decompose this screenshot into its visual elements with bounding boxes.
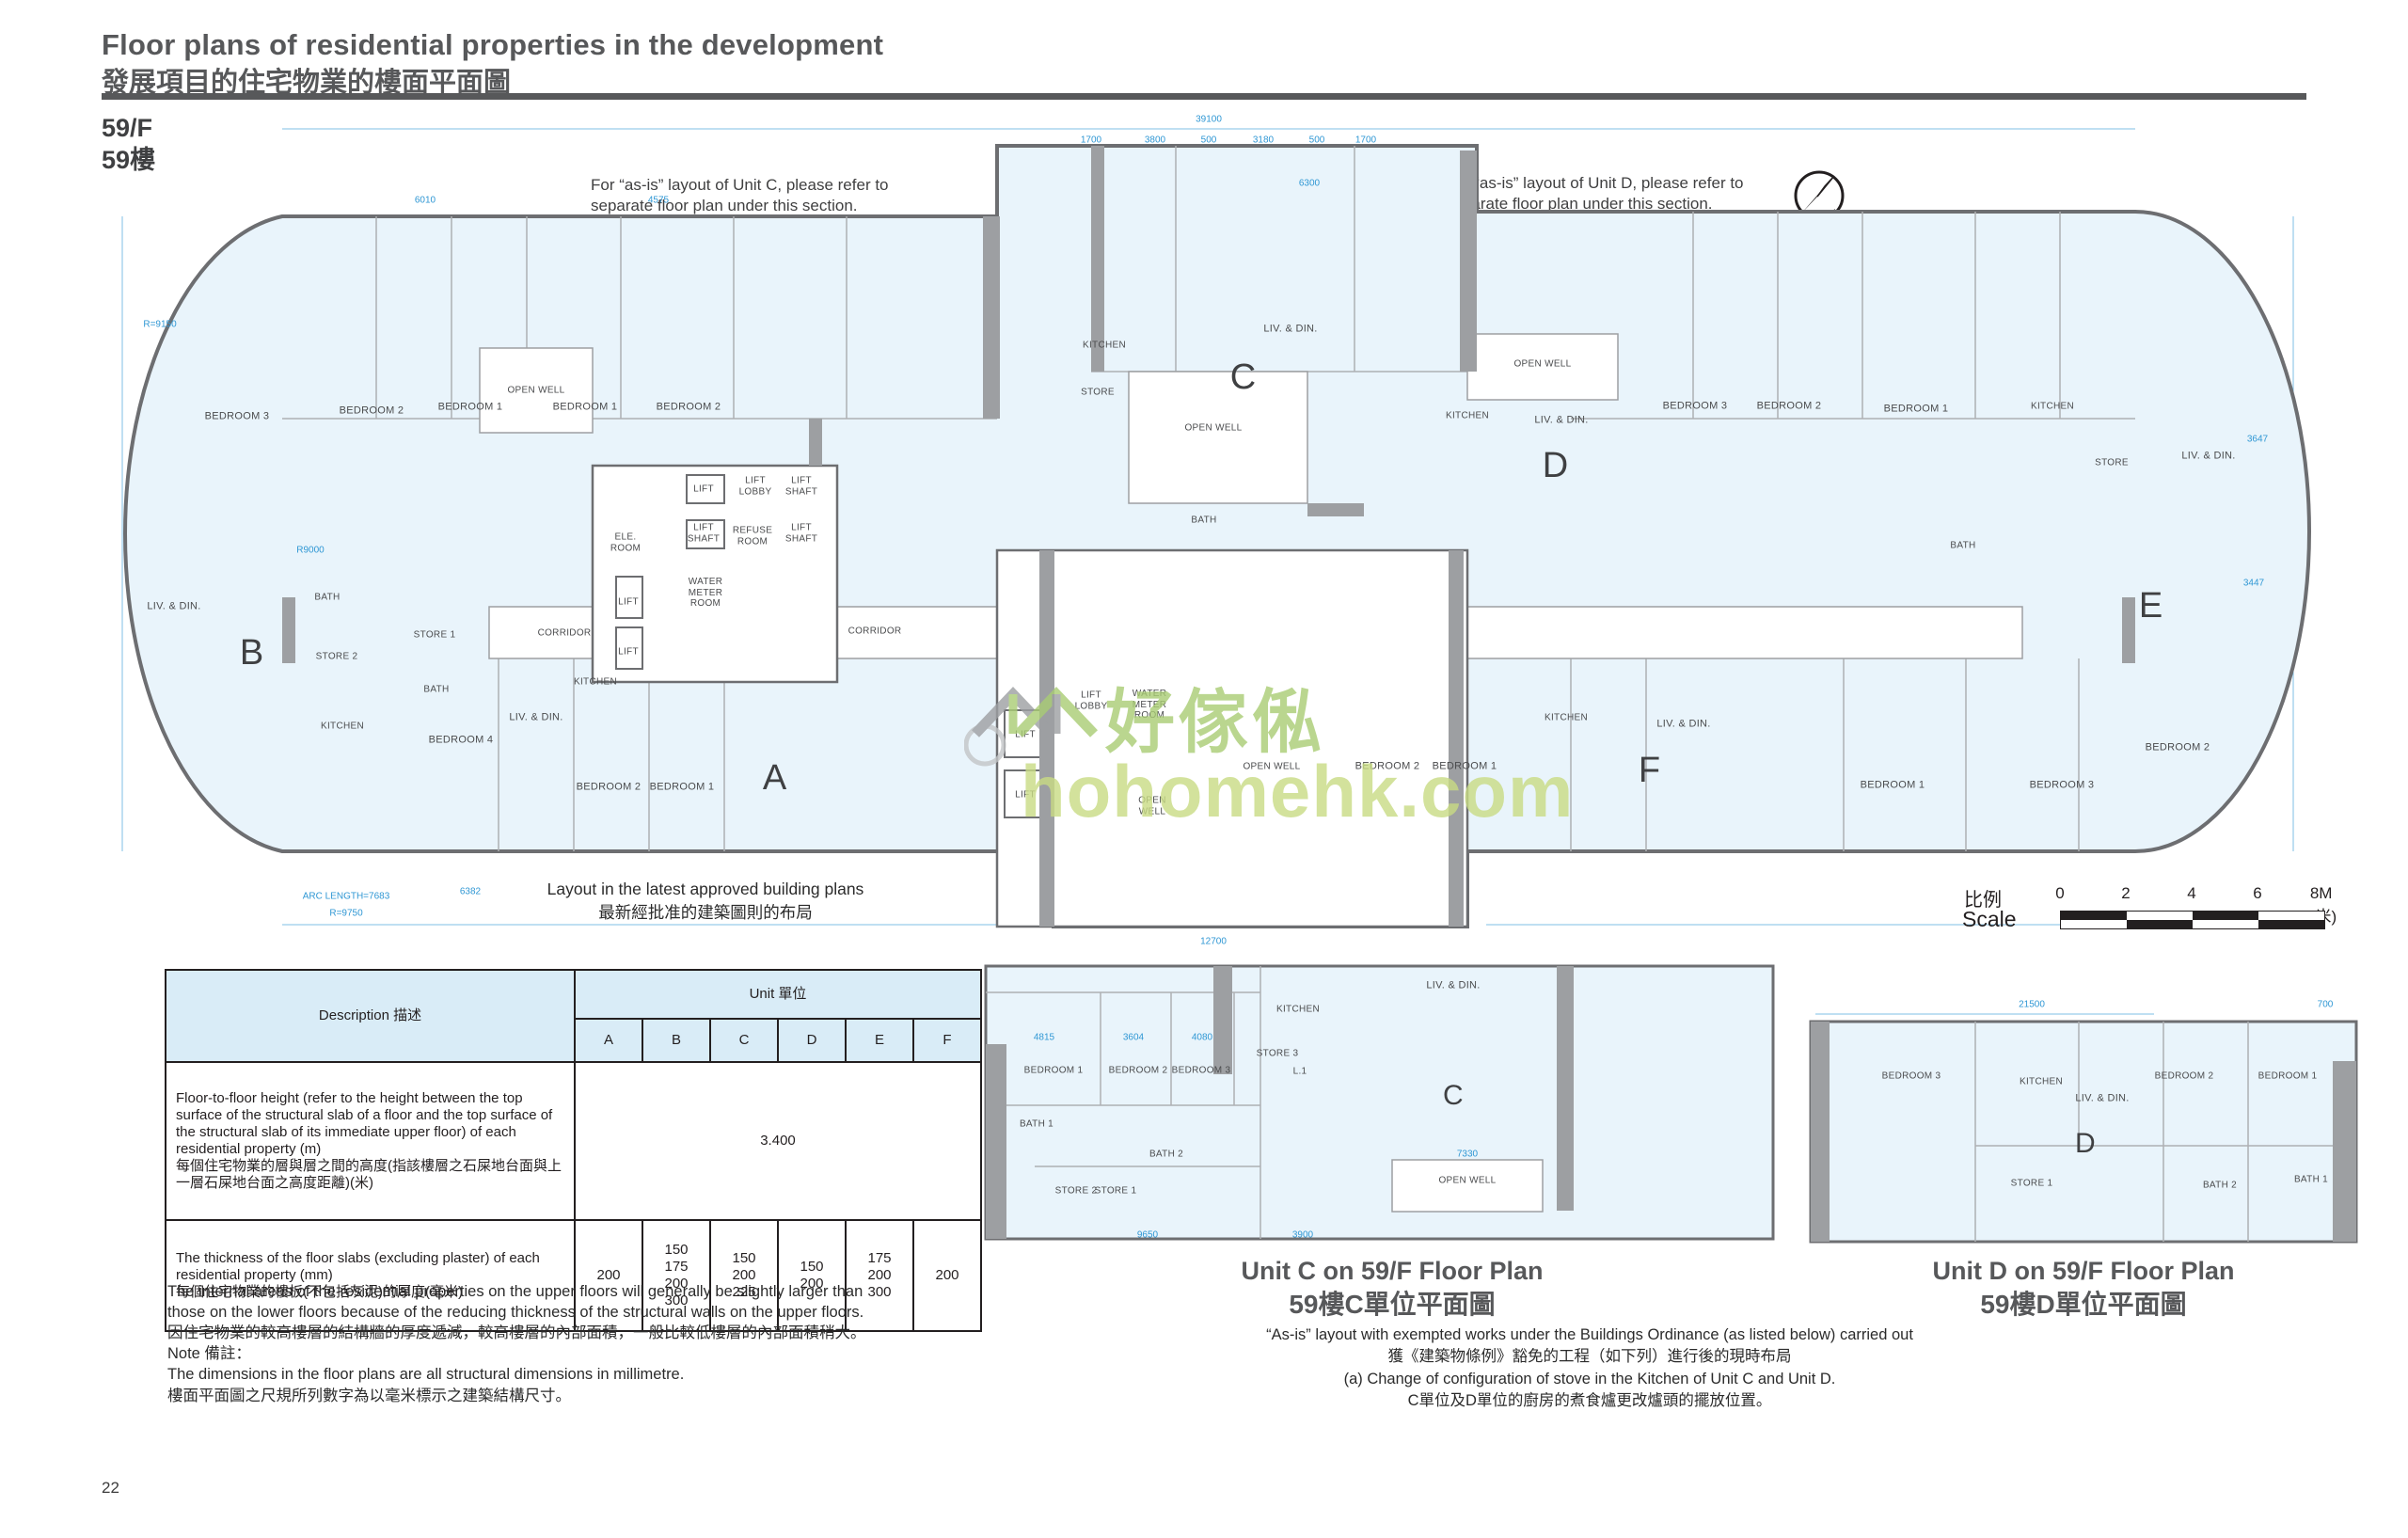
unit-c-caption-zh: 59樓C單位平面圖 (1035, 1288, 1750, 1321)
scale-bar (2060, 911, 2325, 929)
unit-c-plan-drawing (978, 955, 1778, 1251)
page-number: 22 (102, 1479, 119, 1498)
page-title-en: Floor plans of residential properties in… (102, 28, 883, 62)
table-row-floor-height: Floor-to-floor height (refer to the heig… (166, 1062, 981, 1220)
table-col-e: E (846, 1019, 913, 1062)
table-col-c: C (710, 1019, 778, 1062)
page: Floor plans of residential properties in… (0, 0, 2408, 1538)
scale-tick: 2 (2121, 884, 2130, 903)
scale-tick: 6 (2253, 884, 2261, 903)
unit-d-caption: Unit D on 59/F Floor Plan 59樓D單位平面圖 (1806, 1256, 2361, 1321)
scale-tick: 4 (2187, 884, 2195, 903)
main-plan-caption: Layout in the latest approved building p… (395, 878, 1016, 926)
unit-c-floor-plan: CLIV. & DIN.BEDROOM 1BEDROOM 2BEDROOM 3K… (978, 955, 1778, 1251)
unit-d-floor-plan: DLIV. & DIN.KITCHENBEDROOM 3BEDROOM 2BED… (1806, 995, 2361, 1261)
main-floor-plan: BACDFEBEDROOM 3BEDROOM 2BEDROOM 1LIV. & … (94, 108, 2314, 955)
unit-c-caption: Unit C on 59/F Floor Plan 59樓C單位平面圖 (1035, 1256, 1750, 1321)
row1-merged-value: 3.400 (575, 1062, 981, 1220)
unit-d-caption-zh: 59樓D單位平面圖 (1806, 1288, 2361, 1321)
spec-table: Description 描述 Unit 單位 A B C D E F Floor… (165, 969, 982, 1332)
table-col-a: A (575, 1019, 642, 1062)
title-divider (102, 93, 2306, 100)
table-header-description: Description 描述 (166, 970, 575, 1062)
notes-bottom: The internal areas of the residential pr… (167, 1281, 1014, 1406)
table-col-f: F (913, 1019, 981, 1062)
unit-c-caption-en: Unit C on 59/F Floor Plan (1035, 1256, 1750, 1288)
scale-ticks: 0 2 4 6 8M (米) (2047, 884, 2337, 905)
asis-note: “As-is” layout with exempted works under… (978, 1324, 2201, 1413)
table-header-unit: Unit 單位 (575, 970, 981, 1019)
unit-d-plan-drawing (1806, 995, 2361, 1261)
table-col-d: D (778, 1019, 846, 1062)
scale-label-en: Scale (1962, 907, 2017, 932)
unit-d-caption-en: Unit D on 59/F Floor Plan (1806, 1256, 2361, 1288)
scale-tick: 0 (2055, 884, 2064, 903)
table-col-b: B (642, 1019, 710, 1062)
main-floor-plan-drawing (94, 108, 2314, 955)
row2-desc-en: The thickness of the floor slabs (exclud… (176, 1250, 540, 1283)
row1-desc-zh: 每個住宅物業的層與層之間的高度(指該樓層之石屎地台面與上一層石屎地台面之高度距離… (176, 1158, 564, 1192)
row1-desc-en: Floor-to-floor height (refer to the heig… (176, 1090, 552, 1157)
